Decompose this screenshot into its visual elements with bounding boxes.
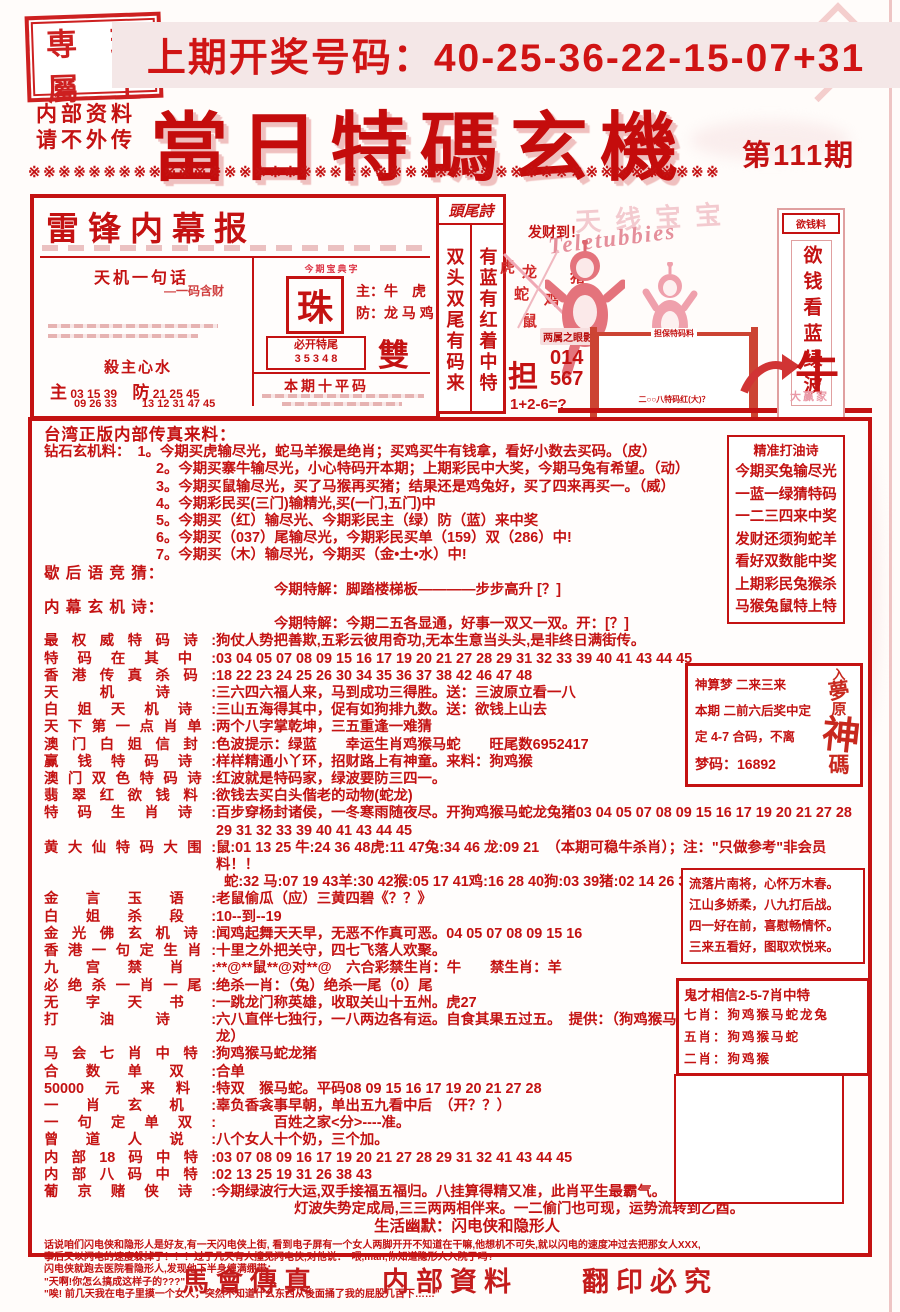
- main-row: 天下第一点肖单两个八字掌乾坤，三五重逢一难猜: [44, 719, 692, 736]
- row-text: 合单: [216, 1064, 692, 1081]
- row-text: 狗鸡猴马蛇龙猪: [216, 1046, 692, 1063]
- blurred-text-row: [42, 245, 428, 251]
- head-tail-verse-1: 双头双尾有码来: [439, 225, 470, 411]
- main-row: 最权威特码诗狗仗人势把善欺,五彩云彼用奇功,无本生意当头头,是非终日满街传。: [44, 633, 864, 650]
- blurred-text-line: [282, 402, 402, 406]
- row-text: 三山五海得其中，促有如狗排九数。送：欲钱上山去: [216, 702, 692, 719]
- guicai-box: 鬼才相信2-5-7肖中特 七肖：狗鸡猴马蛇龙兔五肖：狗鸡猴马蛇二肖：狗鸡猴: [676, 978, 870, 1076]
- tip-sheet-page: { "header": { "seal_chars": ["専", "瑞", "…: [0, 0, 900, 1312]
- row-text: 百姓之家<分>----准。: [216, 1115, 692, 1132]
- list-line: 上期彩民兔猴杀: [731, 574, 841, 597]
- scroll-frame-note: 二○○八特码红(大)？: [599, 394, 749, 405]
- row-text: 10--到--19: [216, 909, 692, 926]
- row-text: 18 22 23 24 25 26 30 34 35 36 37 38 42 4…: [216, 668, 692, 685]
- main-row: 天机诗三六四六福人来，马到成功三得胜。送：三波原立看一八: [44, 685, 692, 702]
- row-text: 闻鸡起舞天天早，无恶不作真可恶。04 05 07 08 09 15 16: [216, 926, 692, 943]
- dream-code-number: 梦码：16892: [695, 754, 776, 774]
- row-text: 特双 猴马蛇。平码08 09 15 16 17 19 20 21 27 28: [216, 1081, 692, 1098]
- tail-number-box: 必开特尾 3 5 3 4 8: [266, 336, 366, 370]
- list-line: 一二三四来中奖: [731, 506, 841, 529]
- row-text: 狗仗人势把善欺,五彩云彼用奇功,无本生意当头头,是非终日满街传。: [216, 633, 864, 650]
- main-row: 香港一句定生肖十里之外把关守，四七飞落人欢聚。: [44, 943, 692, 960]
- ten-flat-codes-label: 本期十平码: [284, 376, 369, 396]
- main-row: 特码生肖诗百步穿杨封诸侯，一冬寒雨随夜尽。开狗鸡猴马蛇龙兔猪03 04 05 0…: [44, 805, 864, 839]
- main-row: 内 幕 玄 机 诗：: [44, 599, 692, 616]
- dream-code-box: 神算梦 二来三来 本期 二前六后奖中定 定 4-7 合码，不离 梦码：16892…: [685, 663, 863, 787]
- money-banner-header: 欲钱料: [782, 213, 840, 234]
- row-label: 香港传真杀码: [44, 668, 216, 685]
- last-draw-numbers: 上期开奖号码：40-25-36-22-15-07+31: [147, 27, 865, 83]
- row-text: 红波就是特码家，绿波要防三四一。: [216, 771, 692, 788]
- row-text: 03 07 08 09 16 17 19 20 21 27 28 29 31 3…: [216, 1150, 692, 1167]
- row-text: 两个八字掌乾坤，三五重逢一难猜: [216, 719, 692, 736]
- main-row: 打油诗六八直伴七独行，一八两边各有运。自食其果五过五。 提供：（狗鸡猴马蛇龙）: [44, 1012, 692, 1046]
- row-text: 一跳龙门称英雄，收取关山十五州。虎27: [216, 995, 692, 1012]
- dan-character: 担: [508, 352, 538, 396]
- row-label: 特码在其中: [44, 651, 216, 668]
- row-text: 辜负香衾事早朝，单出五九看中后 （开？？）: [216, 1098, 692, 1115]
- row-text: **@**鼠**@对**@ 六合彩禁生肖：牛 禁生肖：羊: [216, 960, 692, 977]
- main-row: 金言玉语老鼠偷瓜（应）三黄四碧《？？》: [44, 891, 692, 908]
- page-edge-line: [889, 0, 892, 1312]
- dream-line: 定 4-7 合码，不离: [695, 726, 795, 745]
- sha-label: 殺主心水: [104, 356, 172, 377]
- list-line: 四一好在前，喜慰畅情怀。: [689, 916, 857, 937]
- confidential-note: 内部资料 请不外传: [36, 102, 136, 154]
- row-label: 澳门白姐信封: [44, 737, 216, 754]
- row-text: 02 13 25 19 31 26 38 43: [216, 1167, 692, 1184]
- main-row: 内部18码中特03 07 08 09 16 17 19 20 21 27 28 …: [44, 1150, 692, 1167]
- humor-line: 话说咱们闪电侠和隐形人是好友,有一天闪电侠上街, 看到电子屏有一个女人两脚开开不…: [44, 1240, 864, 1252]
- seal-char: 専: [45, 19, 78, 65]
- leifeng-title: 雷锋内幕报: [46, 202, 256, 250]
- row-text: 绝杀一肖：（兔）绝杀一尾（0）尾: [216, 978, 692, 995]
- verse-box: 流落片南将，心怀万木春。江山多娇柔，八九打后战。四一好在前，喜慰畅情怀。三来五看…: [681, 868, 865, 964]
- footer-item: 翻印必究: [582, 1260, 718, 1299]
- row-text: 六八直伴七独行，一八两边各有运。自食其果五过五。 提供：（狗鸡猴马蛇龙）: [216, 1012, 692, 1046]
- row-label: 赢钱特码诗: [44, 754, 216, 771]
- row-label: 特码生肖诗: [44, 805, 216, 822]
- dan-numbers: 014 567: [550, 348, 583, 390]
- row-label: 天下第一点肖单: [44, 719, 216, 736]
- row-label: 内部八码中特: [44, 1167, 216, 1184]
- dayou-lines: 今期买兔输尽光一蓝一绿猜特码一二三四来中奖发财还须狗蛇羊看好双数能中奖上期彩民兔…: [731, 461, 841, 619]
- row-label: 一句定单双: [44, 1115, 216, 1132]
- head-tail-poem-box: 頭尾詩 双头双尾有码来 有蓝有红着中特: [436, 194, 506, 414]
- tianji-sub: —一码含财: [164, 282, 224, 299]
- dream-vertical-chars: 入夢原神碼: [822, 668, 856, 776]
- row-label: 黄大仙特码大围: [44, 840, 216, 857]
- list-line: 发财还须狗蛇羊: [731, 529, 841, 552]
- main-row: 马会七肖中特狗鸡猴马蛇龙猪: [44, 1046, 692, 1063]
- row-text: 老鼠偷瓜（应）三黄四碧《？？》: [216, 891, 692, 908]
- row-label: 必绝杀一肖一尾: [44, 978, 216, 995]
- dream-line: 本期 二前六后奖中定: [695, 700, 811, 719]
- secondary-numbers-line: 09 26 33 13 12 31 47 45: [74, 395, 215, 411]
- dream-line: 神算梦 二来三来: [695, 674, 786, 693]
- main-row: 翡翠红欲钱料欲钱去买白头偕老的动物(蛇龙): [44, 788, 692, 805]
- main-row: 香港传真杀码18 22 23 24 25 26 30 34 35 36 37 3…: [44, 668, 692, 685]
- ox-sub-label: 大赢家: [790, 388, 829, 404]
- main-row: 50000元来料特双 猴马蛇。平码08 09 15 16 17 19 20 21…: [44, 1081, 692, 1098]
- main-row: 歇 后 语 竞 猜：: [44, 565, 692, 582]
- row-text: 欲钱去买白头偕老的动物(蛇龙): [216, 788, 692, 805]
- row-label: 香港一句定生肖: [44, 943, 216, 960]
- row-label: 打油诗: [44, 1012, 216, 1029]
- blurred-text-line: [262, 394, 424, 398]
- list-line: 二肖：狗鸡猴: [684, 1048, 862, 1070]
- row-label: 一肖玄机: [44, 1098, 216, 1115]
- zhu-character-box: 珠: [286, 276, 344, 334]
- dayou-poem-box: 精准打油诗 今期买兔输尽光一蓝一绿猜特码一二三四来中奖发财还须狗蛇羊看好双数能中…: [727, 435, 845, 624]
- zhu-box-header: 今期宝典字: [272, 262, 392, 275]
- main-row: 白姐杀段10--到--19: [44, 909, 692, 926]
- row-text: 色波提示：绿蓝 幸运生肖鸡猴马蛇 旺尾数6952417: [216, 737, 692, 754]
- main-row: 必绝杀一肖一尾绝杀一肖：（兔）绝杀一尾（0）尾: [44, 978, 692, 995]
- main-row: 一肖玄机辜负香衾事早朝，单出五九看中后 （开？？）: [44, 1098, 692, 1115]
- main-row: 内部八码中特02 13 25 19 31 26 38 43: [44, 1167, 692, 1184]
- row-label: 50000元来料: [44, 1081, 216, 1098]
- empty-box: [674, 1074, 844, 1204]
- row-label: 曾道人说: [44, 1132, 216, 1149]
- guicai-title: 鬼才相信2-5-7肖中特: [684, 984, 862, 1004]
- blurred-text-line: [48, 334, 198, 338]
- divider-line: [252, 256, 254, 406]
- row-text: 十里之外把关守，四七飞落人欢聚。: [216, 943, 692, 960]
- row-label: 白姐天机诗: [44, 702, 216, 719]
- main-row: 一句定单双 百姓之家<分>----准。: [44, 1115, 692, 1132]
- main-row: 澳门双色特码诗红波就是特码家，绿波要防三四一。: [44, 771, 692, 788]
- list-line: 马猴兔鼠特上特: [731, 596, 841, 619]
- main-row: 曾道人说八个女人十个奶，三个加。: [44, 1132, 692, 1149]
- main-row: 无字天书一跳龙门称英雄，收取关山十五州。虎27: [44, 995, 692, 1012]
- leifeng-box: 雷锋内幕报 天机一句话 —一码含财 殺主心水 主 03 15 39 防 21 2…: [30, 194, 440, 420]
- scroll-frame-label: 担保特码料: [651, 328, 697, 339]
- list-line: 今期买兔输尽光: [731, 461, 841, 484]
- list-line: 三来五看好，图取欢悦来。: [689, 937, 857, 958]
- row-text: 八个女人十个奶，三个加。: [216, 1132, 692, 1149]
- main-row: 合数单双合单: [44, 1064, 692, 1081]
- ornament-divider: ※※※※※※※※※※※※※※※※※※※※※※※※※※※※※※※※※※※※※※※※…: [28, 163, 872, 181]
- row-text: 样样精通小丫环，招财路上有神童。来料：狗鸡猴: [216, 754, 692, 771]
- row-label: 最权威特码诗: [44, 633, 216, 650]
- row-label: 澳门双色特码诗: [44, 771, 216, 788]
- row-label: 金言玉语: [44, 891, 216, 908]
- main-row: 九宫禁肖**@**鼠**@对**@ 六合彩禁生肖：牛 禁生肖：羊: [44, 960, 692, 977]
- main-row: 生活幽默：闪电侠和隐形人: [44, 1218, 864, 1235]
- list-line: 一蓝一绿猜特码: [731, 484, 841, 507]
- small-red-tag: 两属之眼影: [540, 328, 596, 345]
- last-draw-banner: 上期开奖号码：40-25-36-22-15-07+31: [112, 22, 900, 88]
- verse-lines: 流落片南将，心怀万木春。江山多娇柔，八九打后战。四一好在前，喜慰畅情怀。三来五看…: [689, 874, 857, 958]
- dream-vertical-char: 夢: [821, 679, 858, 705]
- divider-line: [40, 256, 430, 258]
- facai-label: 发财到！: [528, 222, 584, 242]
- footer-item: 馬會傳真: [182, 1260, 318, 1299]
- main-row: 澳门白姐信封色波提示：绿蓝 幸运生肖鸡猴马蛇 旺尾数6952417: [44, 737, 692, 754]
- scroll-frame: 担保特码料 二○○八特码红(大)？: [595, 332, 753, 412]
- main-row: 台湾正版内部传真来料：: [44, 427, 692, 444]
- list-line: 七肖：狗鸡猴马蛇龙兔: [684, 1004, 862, 1026]
- dayou-title: 精准打油诗: [731, 440, 841, 459]
- main-row: 金光佛玄机诗闻鸡起舞天天早，无恶不作真可恶。04 05 07 08 09 15 …: [44, 926, 692, 943]
- row-label: 马会七肖中特: [44, 1046, 216, 1063]
- row-label: 合数单双: [44, 1064, 216, 1081]
- dream-vertical-char: 神: [820, 715, 858, 756]
- list-line: 看好双数能中奖: [731, 551, 841, 574]
- list-line: 五肖：狗鸡猴马蛇: [684, 1026, 862, 1048]
- divider-line: [254, 372, 430, 374]
- row-label: 天机诗: [44, 685, 216, 702]
- footer-item: 内部資料: [382, 1260, 518, 1299]
- row-text: 三六四六福人来，马到成功三得胜。送：三波原立看一八: [216, 685, 692, 702]
- list-line: 流落片南将，心怀万木春。: [689, 874, 857, 895]
- row-label: 内部18码中特: [44, 1150, 216, 1167]
- row-label: 白姐杀段: [44, 909, 216, 926]
- head-tail-header: 頭尾詩: [439, 197, 503, 225]
- main-row: 赢钱特码诗样样精通小丫环，招财路上有神童。来料：狗鸡猴: [44, 754, 692, 771]
- row-label: 葡京赌侠诗: [44, 1184, 216, 1201]
- blurred-text-line: [48, 324, 218, 328]
- footer: 馬會傳真内部資料翻印必究: [0, 1260, 900, 1299]
- guicai-lines: 七肖：狗鸡猴马蛇龙兔五肖：狗鸡猴马蛇二肖：狗鸡猴: [684, 1004, 862, 1070]
- main-defend-lines: 主：牛 虎 防：龙 马 鸡: [356, 280, 434, 324]
- main-row: 白姐天机诗三山五海得其中，促有如狗排九数。送：欲钱上山去: [44, 702, 692, 719]
- list-line: 江山多娇柔，八九打后战。: [689, 895, 857, 916]
- row-label: 翡翠红欲钱料: [44, 788, 216, 805]
- row-label: 无字天书: [44, 995, 216, 1012]
- row-label: 九宫禁肖: [44, 960, 216, 977]
- row-text: 百步穿杨封诸侯，一冬寒雨随夜尽。开狗鸡猴马蛇龙兔猪03 04 05 07 08 …: [216, 805, 864, 839]
- row-label: 金光佛玄机诗: [44, 926, 216, 943]
